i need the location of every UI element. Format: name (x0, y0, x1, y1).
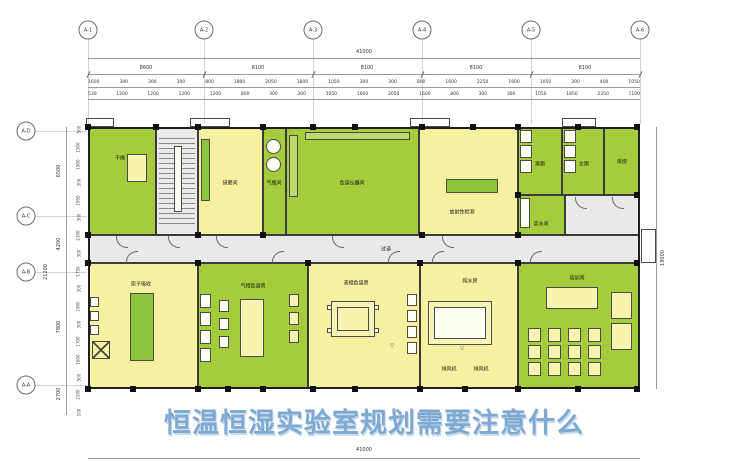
dim-value: 500 (76, 373, 81, 381)
axis-bubble-a3: A-3 (304, 21, 323, 40)
instrument (407, 326, 417, 338)
desk (588, 345, 601, 359)
dim-value: 1600 (508, 80, 519, 85)
chair (374, 305, 379, 310)
room-label-training: 培训间 (569, 275, 584, 282)
page-title: 恒温恒湿实验室规划需要注意什么 (164, 401, 584, 440)
desk (548, 328, 561, 342)
dim-value: 1900 (76, 301, 81, 311)
dim-value: 1700 (76, 337, 81, 347)
dim-left: 2700 (56, 388, 62, 401)
room-label-pure-water: 纯水房 (462, 278, 477, 285)
column (419, 124, 425, 130)
column (634, 124, 640, 130)
elevation-mark: ▽ (390, 343, 394, 349)
dim-left: 7800 (56, 321, 62, 334)
instrument (407, 310, 417, 322)
column (575, 386, 581, 392)
axis-bubble-a4: A-4 (413, 21, 432, 40)
floor-plan-page: A-1 A-2 A-3 A-4 A-5 A-6 A-D A-C A-B A-A … (0, 0, 748, 474)
instrument (407, 342, 417, 354)
toilet-stall (520, 160, 532, 173)
column (310, 124, 316, 130)
column (419, 232, 425, 238)
podium-table (546, 287, 598, 309)
dim-sub-row-2: 5301200120012001200800300300105016002050… (88, 92, 640, 97)
column (260, 386, 266, 392)
room-label-tea: 茶水间 (533, 221, 548, 228)
column (260, 232, 266, 238)
instrument (219, 336, 229, 348)
dim-line (656, 127, 657, 389)
dim-value: 300 (119, 80, 128, 85)
axis-bubble-ac: A-C (17, 207, 36, 226)
table (337, 307, 369, 331)
dim-bay: 8600 (140, 65, 153, 71)
room-label-female-toilet: 女厕 (579, 161, 589, 168)
dim-value: 500 (76, 126, 81, 134)
desk (568, 328, 581, 342)
dim-value: 2100 (76, 231, 81, 241)
dim-value: 1800 (297, 80, 308, 85)
axis-bubble-ad: A-D (17, 122, 36, 141)
toilet-stall (520, 145, 532, 158)
dim-total-top: 41000 (356, 49, 372, 55)
desk (588, 328, 601, 342)
chair (327, 328, 332, 333)
gas-cylinder (266, 157, 281, 172)
toilet-stall (564, 130, 576, 143)
dim-value: 300 (177, 80, 186, 85)
dim-value: 1200 (116, 92, 127, 97)
dim-value: 300 (76, 285, 81, 293)
dim-value: 2050 (388, 92, 399, 97)
desk (568, 345, 581, 359)
instrument (200, 294, 211, 308)
chair (374, 328, 379, 333)
dim-left: 4200 (56, 238, 62, 251)
instrument (289, 312, 299, 325)
instrument (289, 330, 299, 343)
dim-value: 1950 (76, 195, 81, 205)
cabinet (611, 292, 632, 319)
dim-value: 1850 (566, 92, 577, 97)
instrument (90, 325, 99, 335)
axis-bubble-a5: A-5 (522, 21, 541, 40)
bench (127, 154, 147, 182)
dim-value: 800 (241, 92, 250, 97)
fan-label: 排风机 (441, 366, 456, 373)
dim-value: 400 (600, 80, 609, 85)
table (240, 299, 264, 357)
dim-value: 300 (360, 80, 369, 85)
dim-value: 300 (76, 214, 81, 222)
desk (548, 345, 561, 359)
dim-line (88, 74, 640, 75)
dim-value: 1600 (357, 92, 368, 97)
dim-value: 300 (479, 92, 488, 97)
desk (548, 362, 561, 376)
dim-value: 2050 (265, 80, 276, 85)
column (85, 124, 91, 130)
room-label-gc: 气相色谱房 (240, 283, 265, 290)
dim-value: 800 (205, 80, 214, 85)
column (575, 124, 581, 130)
dim-value: 100 (76, 409, 81, 417)
dim-bay: 8100 (579, 65, 592, 71)
dim-right-total: 19000 (660, 250, 666, 266)
dim-value: 300 (571, 80, 580, 85)
room-label-storage: 库房 (617, 159, 627, 166)
dim-value: 300 (76, 320, 81, 328)
dim-line (88, 458, 640, 459)
dim-left-overall: 21200 (43, 264, 49, 280)
column (85, 386, 91, 392)
column (515, 192, 521, 198)
dim-value: 300 (148, 80, 157, 85)
instrument (219, 300, 229, 312)
dim-value: 300 (507, 92, 516, 97)
dim-value: 1900 (76, 160, 81, 170)
dim-sub-row-1: 1600300300300800180020501800105030030080… (88, 80, 640, 85)
gas-cylinder (266, 139, 281, 154)
column (153, 124, 159, 130)
desk (528, 345, 541, 359)
dim-value: 1050 (540, 80, 551, 85)
column (515, 386, 521, 392)
fan-symbol (92, 341, 110, 359)
dim-value: 800 (417, 80, 426, 85)
column (195, 260, 201, 266)
dim-value: 1200 (210, 92, 221, 97)
dim-value: 1800 (234, 80, 245, 85)
desk (588, 362, 601, 376)
column (634, 386, 640, 392)
room-label-chromatograph: 色谱仪器间 (339, 180, 364, 187)
column (417, 260, 423, 266)
fan-label: 排风机 (473, 366, 488, 373)
dim-line (66, 127, 67, 415)
bench (305, 132, 410, 140)
dim-value: 1600 (419, 92, 430, 97)
column (515, 124, 521, 130)
column (85, 260, 91, 266)
column (417, 386, 423, 392)
dim-bottom-total: 41000 (356, 447, 372, 453)
bench (289, 135, 298, 197)
column (260, 124, 266, 130)
column (352, 124, 358, 130)
room-label-corridor: 过道 (381, 246, 391, 253)
cabinet (611, 323, 632, 350)
room-label-radioactive: 放射性检测 (449, 209, 474, 216)
dim-value: 1100 (629, 92, 640, 97)
instrument (90, 297, 99, 307)
column (195, 386, 201, 392)
dim-bay: 8100 (470, 65, 483, 71)
dim-value: 1050 (628, 80, 639, 85)
dim-value: 1600 (88, 80, 99, 85)
dim-value: 300 (297, 92, 306, 97)
instrument (200, 330, 211, 344)
desk (528, 328, 541, 342)
instrument (200, 312, 211, 326)
desk (528, 362, 541, 376)
elevation-mark: ▽ (460, 346, 464, 352)
table (446, 179, 498, 193)
column (515, 232, 521, 238)
room-label-drying: 干燥 (115, 155, 125, 162)
axis-bubble-aa: A-A (17, 376, 36, 395)
instrument (407, 294, 417, 306)
column (310, 386, 316, 392)
dim-value: 1050 (328, 80, 339, 85)
dim-value: 1050 (535, 92, 546, 97)
column (130, 386, 136, 392)
column (195, 232, 201, 238)
dim-value: 2100 (76, 390, 81, 400)
dim-value: 1600 (76, 354, 81, 364)
column (225, 386, 231, 392)
toilet-stall (564, 160, 576, 173)
counter (520, 198, 530, 228)
table (434, 307, 486, 339)
column (462, 386, 468, 392)
stair-rail (174, 146, 182, 212)
column (195, 124, 201, 130)
axis-line (640, 39, 641, 124)
room-label-lc: 液相色谱房 (343, 280, 368, 287)
dim-value: 2350 (597, 92, 608, 97)
desk (568, 362, 581, 376)
room-label-atomic: 原子吸收 (131, 281, 151, 288)
dim-line (88, 99, 640, 100)
chair (327, 305, 332, 310)
dim-value: 300 (269, 92, 278, 97)
toilet-stall (564, 145, 576, 158)
dim-value: 1200 (147, 92, 158, 97)
dim-value: 1750 (76, 266, 81, 276)
dim-left: 6500 (56, 165, 62, 178)
axis-bubble-ab: A-B (17, 263, 36, 282)
dim-value: 300 (76, 179, 81, 187)
column (305, 260, 311, 266)
column (634, 192, 640, 198)
room-label-male-toilet: 男厕 (535, 161, 545, 168)
column (85, 232, 91, 238)
dim-bay: 8100 (252, 65, 265, 71)
instrument (289, 294, 299, 307)
entrance-canopy (410, 118, 450, 127)
instrument (90, 311, 99, 321)
room-label-grinding: 研磨间 (222, 180, 237, 187)
dim-value: 300 (388, 80, 397, 85)
exterior-steps (641, 229, 656, 263)
instrument (200, 348, 211, 362)
axis-bubble-a2: A-2 (195, 21, 214, 40)
dim-left-sub: 5001500190030019503002100300175030019003… (74, 127, 83, 415)
dim-value: 1500 (76, 142, 81, 152)
instrument (219, 318, 229, 330)
dim-value: 2250 (477, 80, 488, 85)
column (470, 124, 476, 130)
axis-bubble-a6: A-6 (631, 21, 650, 40)
bench (201, 139, 210, 201)
dim-value: 800 (450, 92, 459, 97)
room-label-gas: 气瓶间 (266, 180, 281, 187)
dim-value: 1600 (445, 80, 456, 85)
column (352, 386, 358, 392)
dim-value: 1200 (179, 92, 190, 97)
dim-value: 530 (88, 92, 97, 97)
dim-bay: 8100 (361, 65, 374, 71)
dim-value: 1050 (326, 92, 337, 97)
dim-value: 300 (76, 249, 81, 257)
dim-line (88, 87, 640, 88)
column (515, 260, 521, 266)
dim-line (88, 58, 640, 59)
table (130, 293, 154, 361)
column (634, 260, 640, 266)
axis-bubble-a1: A-1 (79, 21, 98, 40)
toilet-stall (520, 130, 532, 143)
